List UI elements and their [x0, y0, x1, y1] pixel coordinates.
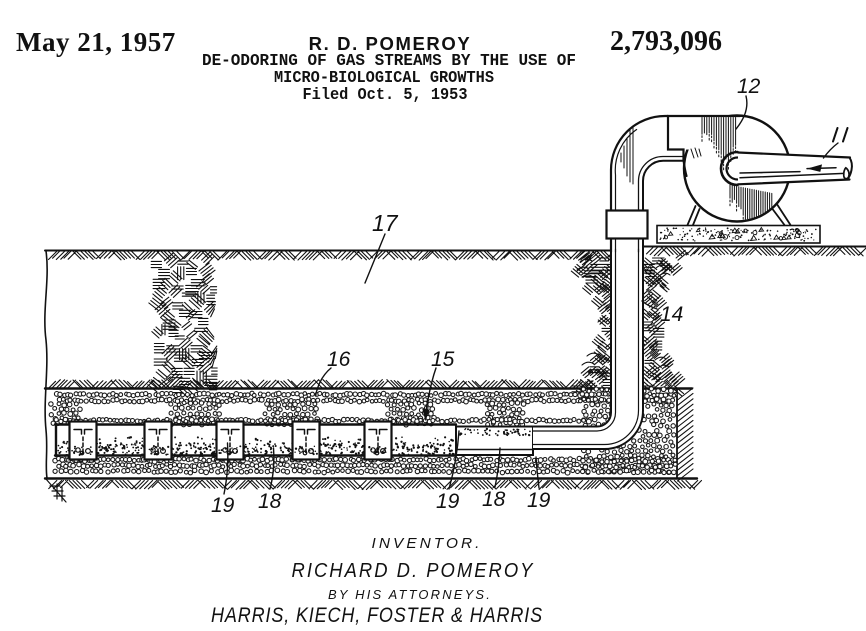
svg-text:18: 18 [482, 488, 506, 511]
svg-text:19: 19 [436, 490, 460, 513]
svg-text:INVENTOR.: INVENTOR. [372, 535, 483, 552]
svg-text:19: 19 [527, 489, 551, 512]
svg-text:14: 14 [660, 303, 683, 326]
svg-text:BY HIS ATTORNEYS.: BY HIS ATTORNEYS. [328, 587, 492, 602]
svg-text:17: 17 [372, 210, 399, 236]
svg-text:RICHARD D. POMEROY: RICHARD D. POMEROY [292, 560, 535, 582]
svg-text:19: 19 [211, 494, 235, 517]
svg-text:12: 12 [737, 75, 761, 98]
svg-text:R. D. POMEROY: R. D. POMEROY [309, 33, 472, 54]
svg-text:HARRIS, KIECH, FOSTER & HARRIS: HARRIS, KIECH, FOSTER & HARRIS [211, 604, 543, 627]
svg-text:15: 15 [431, 348, 455, 371]
svg-text:18: 18 [258, 490, 282, 513]
svg-text:Filed Oct. 5, 1953: Filed Oct. 5, 1953 [303, 86, 468, 105]
svg-text:2,793,096: 2,793,096 [610, 26, 722, 57]
svg-text:May 21, 1957: May 21, 1957 [16, 27, 176, 57]
